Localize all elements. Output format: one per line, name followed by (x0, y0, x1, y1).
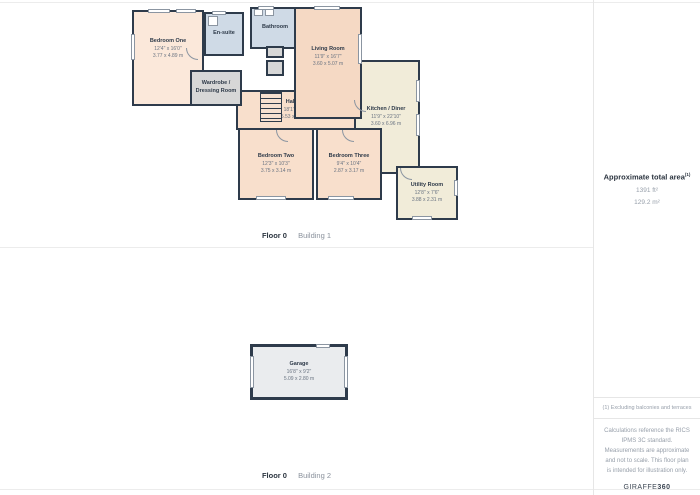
window (454, 180, 458, 196)
footnote-marker: (1) (685, 172, 691, 177)
window (314, 6, 340, 10)
room-name: Bedroom Two (258, 153, 294, 161)
floorplan-page: Kitchen / Diner 11'9" x 22'10" 3.60 x 6.… (0, 0, 700, 495)
room-label: Bedroom Two 12'3" x 10'3" 3.75 x 3.14 m (258, 153, 294, 174)
room-label: Living Room 11'9" x 16'7" 3.60 x 5.07 m (311, 46, 344, 67)
room-metric: 3.60 x 6.96 m (367, 121, 406, 128)
brand-prefix: GIRAFFE (623, 484, 657, 491)
room-imperial: 11'9" x 22'10" (367, 114, 406, 121)
garage-door (250, 356, 254, 388)
window (258, 6, 274, 10)
building-1-floorplan: Kitchen / Diner 11'9" x 22'10" 3.60 x 6.… (128, 4, 464, 228)
window (316, 344, 330, 348)
window (131, 34, 135, 60)
divider (0, 247, 593, 248)
room-label: Bedroom One 12'4" x 16'0" 3.77 x 4.89 m (150, 38, 186, 59)
cupboard (266, 46, 284, 58)
room-metric: 3.75 x 3.14 m (258, 168, 294, 175)
room-bedroom-two: Bedroom Two 12'3" x 10'3" 3.75 x 3.14 m (238, 128, 314, 200)
room-metric: 5.09 x 2.80 m (284, 376, 314, 383)
sidebar-notes: (1) Excluding balconies and terraces Cal… (594, 397, 700, 495)
room-name: Living Room (311, 46, 344, 54)
room-name: Wardrobe / Dressing Room (192, 80, 240, 95)
room-metric: 2.87 x 3.17 m (329, 168, 370, 175)
room-name: En-suite (213, 30, 235, 38)
room-imperial: 16'8" x 9'2" (284, 369, 314, 376)
brand-logo: GIRAFFE360 (594, 481, 700, 495)
floor-label: Floor 0 (262, 231, 287, 240)
garage-door (344, 356, 348, 388)
window (412, 216, 432, 220)
bathroom-fixture (254, 9, 263, 16)
room-living-room: Living Room 11'9" x 16'7" 3.60 x 5.07 m (294, 7, 362, 119)
building-label: Building 2 (298, 471, 331, 480)
sidebar: Approximate total area(1) 1391 ft² 129.2… (593, 0, 700, 495)
window (176, 9, 196, 13)
cupboard (266, 60, 284, 76)
brand-suffix: 360 (657, 484, 670, 491)
window (148, 9, 170, 13)
room-name: Bathroom (262, 24, 288, 32)
total-area-title-text: Approximate total area (604, 173, 685, 182)
room-label: Bathroom (262, 24, 288, 32)
room-garage: Garage 16'8" x 9'2" 5.09 x 2.80 m (250, 344, 348, 400)
room-label: Kitchen / Diner 11'9" x 22'10" 3.60 x 6.… (367, 106, 406, 127)
room-imperial: 12'8" x 7'6" (411, 190, 443, 197)
total-area-title: Approximate total area(1) (594, 172, 700, 182)
room-name: Utility Room (411, 182, 443, 190)
window (328, 196, 354, 200)
room-label: Utility Room 12'8" x 7'6" 3.88 x 2.31 m (411, 182, 443, 203)
room-metric: 3.60 x 5.07 m (311, 61, 344, 68)
window (212, 11, 226, 15)
room-imperial: 11'9" x 16'7" (311, 54, 344, 61)
total-area-m: 129.2 m² (594, 199, 700, 206)
room-label: En-suite (213, 30, 235, 38)
stairs (260, 92, 282, 122)
room-label: Wardrobe / Dressing Room (192, 80, 240, 95)
window (256, 196, 286, 200)
floor-label: Floor 0 (262, 471, 287, 480)
room-label: Bedroom Three 9'4" x 10'4" 2.87 x 3.17 m (329, 153, 370, 174)
room-wardrobe-dressing: Wardrobe / Dressing Room (190, 70, 242, 106)
room-name: Bedroom Three (329, 153, 370, 161)
room-name: Garage (284, 361, 314, 369)
room-imperial: 12'4" x 16'0" (150, 46, 186, 53)
footnote-text: (1) Excluding balconies and terraces (594, 397, 700, 419)
window (358, 34, 362, 64)
room-metric: 3.77 x 4.89 m (150, 53, 186, 60)
room-label: Garage 16'8" x 9'2" 5.09 x 2.80 m (284, 361, 314, 382)
window (416, 80, 420, 102)
floor-caption-building-2: Floor 0 Building 2 (0, 471, 593, 480)
window (416, 114, 420, 136)
room-imperial: 12'3" x 10'3" (258, 161, 294, 168)
bathroom-fixture (265, 9, 274, 16)
room-name: Kitchen / Diner (367, 106, 406, 114)
shower-fixture (208, 16, 218, 26)
room-metric: 3.88 x 2.31 m (411, 197, 443, 204)
room-imperial: 9'4" x 10'4" (329, 161, 370, 168)
disclaimer-text: Calculations reference the RICS IPMS 3C … (594, 419, 700, 481)
total-area-ft: 1391 ft² (594, 187, 700, 194)
building-label: Building 1 (298, 231, 331, 240)
total-area-panel: Approximate total area(1) 1391 ft² 129.2… (594, 172, 700, 206)
building-2-floorplan: Garage 16'8" x 9'2" 5.09 x 2.80 m (250, 344, 350, 402)
floor-caption-building-1: Floor 0 Building 1 (0, 231, 593, 240)
room-name: Bedroom One (150, 38, 186, 46)
